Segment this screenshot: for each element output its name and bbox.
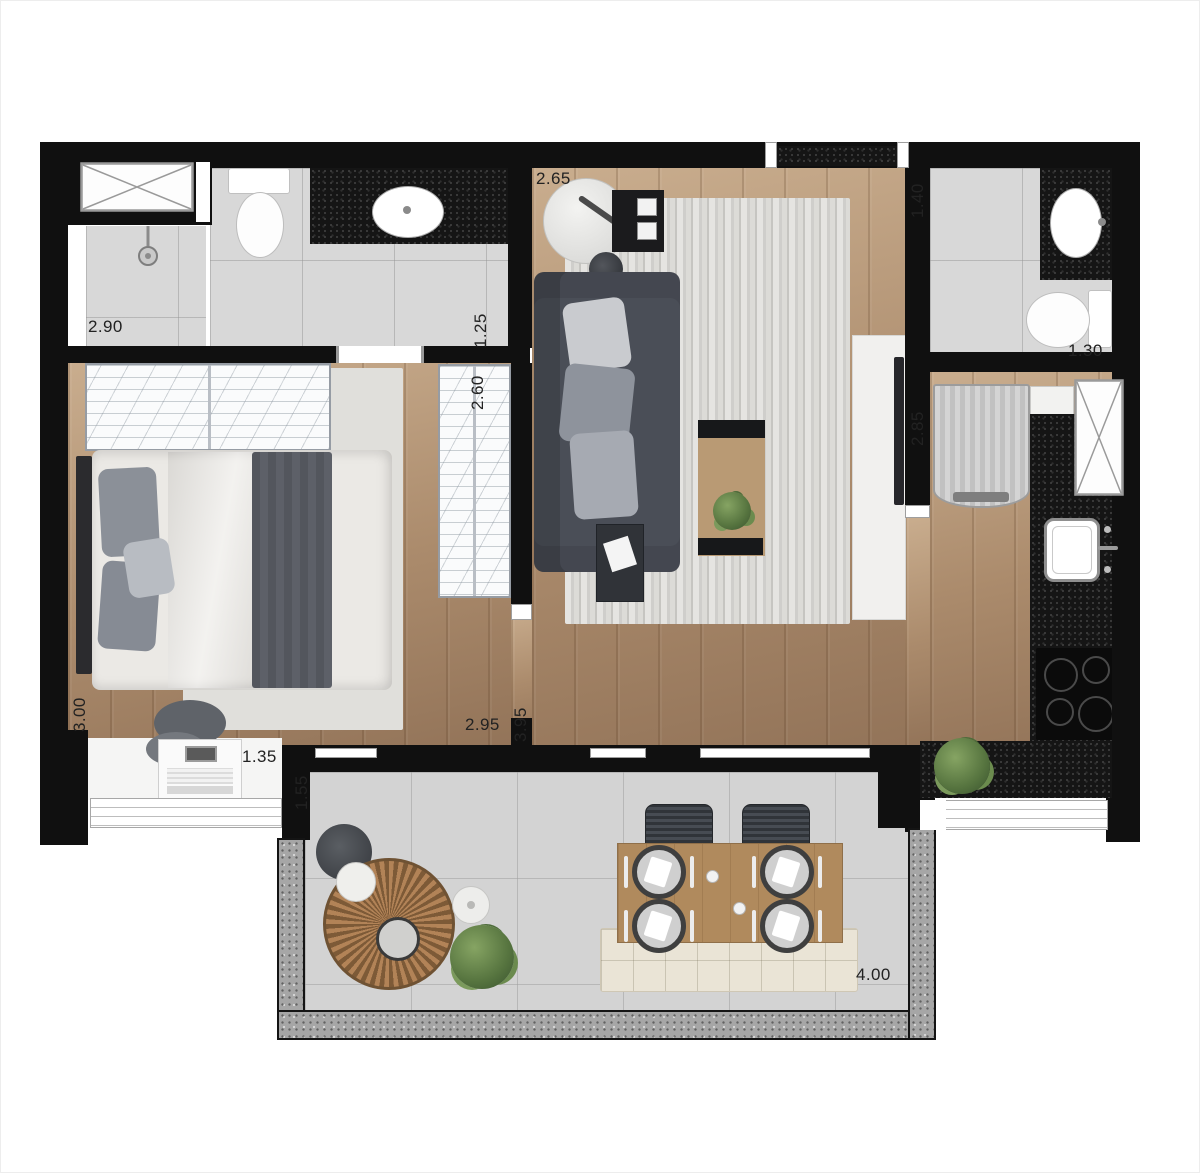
wall-left-corner xyxy=(40,730,88,845)
kitchen-plant xyxy=(934,738,990,794)
kitchen-passage-floor xyxy=(905,518,930,745)
burner-4 xyxy=(1078,696,1114,732)
shower-head-icon xyxy=(130,226,166,270)
floor-plan: 2.90 1.25 2.65 1.40 1.30 2.60 2.85 3.00 … xyxy=(0,0,1200,1173)
kitchen-sink-basin xyxy=(1052,526,1092,574)
balcony-wall-bottom xyxy=(277,1010,935,1040)
toilet2-bowl xyxy=(1026,292,1090,348)
washer-base xyxy=(167,786,233,794)
napkin-2 xyxy=(772,856,801,888)
console-tray-2 xyxy=(637,222,657,240)
bathroom1-door-opening xyxy=(336,346,424,363)
wardrobe-top xyxy=(85,363,331,451)
wall-bath1-living xyxy=(508,168,532,348)
entry-jamb-left xyxy=(765,142,777,168)
wall-bedroom-living xyxy=(511,363,532,608)
console-tray-1 xyxy=(637,198,657,216)
bath2-faucet-icon xyxy=(1098,218,1106,226)
dim-bath1-depth: 1.25 xyxy=(472,313,489,348)
washer-vents xyxy=(167,768,233,784)
dim-living-depth: 3.95 xyxy=(512,707,529,742)
dim-wardrobe-length: 2.60 xyxy=(469,375,486,410)
balcony-plant xyxy=(450,925,514,989)
napkin-3 xyxy=(644,910,673,942)
sofa-side-table xyxy=(596,524,644,602)
dim-balcony-depth: 1.55 xyxy=(293,775,310,810)
balcony-door-frame-1 xyxy=(315,748,377,758)
toilet1-tank xyxy=(228,168,290,194)
entry-hall-strip xyxy=(777,146,897,166)
dim-bath2-depth: 1.40 xyxy=(909,183,926,218)
toilet1-bowl xyxy=(236,192,284,258)
refrigerator xyxy=(933,384,1030,508)
dim-laundry-width: 1.35 xyxy=(242,748,277,765)
side-table-dot xyxy=(467,901,475,909)
duct-shaft-icon xyxy=(80,162,194,212)
dim-balcony-width: 4.00 xyxy=(856,966,891,983)
kitchen-window xyxy=(932,800,1108,830)
magazine xyxy=(603,536,637,573)
wicker-chair-center xyxy=(376,917,420,961)
dim-living-width: 2.65 xyxy=(536,170,571,187)
cooktop xyxy=(1036,648,1114,740)
cup-1 xyxy=(706,870,719,883)
washer-panel xyxy=(185,746,217,762)
kitchen-balcony-door xyxy=(920,800,946,830)
kitchen-passage-jamb xyxy=(905,505,930,518)
bath1-duct-jamb xyxy=(196,162,210,222)
coffee-table xyxy=(698,420,765,556)
tv xyxy=(894,357,904,505)
kitchen-duct-shaft-icon xyxy=(1074,379,1124,496)
balcony-cushion xyxy=(336,862,376,902)
balcony-window-sill xyxy=(700,748,870,758)
bath1-faucet-icon xyxy=(403,206,411,214)
wall-living-kitchen xyxy=(905,168,930,518)
burner-1 xyxy=(1044,658,1078,692)
faucet-knob-1 xyxy=(1104,526,1111,533)
place-setting-3 xyxy=(632,899,686,953)
bed-pillow-small xyxy=(122,537,176,600)
kitchen-sink xyxy=(1044,518,1100,582)
coffee-table-plant xyxy=(713,492,751,530)
coffee-table-end-bottom xyxy=(698,538,763,555)
bedroom-door-jamb xyxy=(511,604,532,620)
place-setting-4 xyxy=(760,899,814,953)
wall-kitchen-window-right xyxy=(1106,798,1140,842)
napkin-1 xyxy=(644,856,673,888)
toilet2-tank xyxy=(1088,290,1112,348)
coffee-table-end-top xyxy=(698,420,765,438)
wardrobe-top-rail xyxy=(208,365,211,449)
balcony-wall-right xyxy=(908,828,936,1040)
refrigerator-handle xyxy=(953,492,1009,502)
sofa-pillow-light xyxy=(561,296,632,374)
bed-runner-blanket xyxy=(252,452,332,688)
wall-bath1-bottom xyxy=(68,346,530,363)
dim-kitchen-depth: 2.85 xyxy=(909,411,926,446)
cup-2 xyxy=(733,902,746,915)
burner-3 xyxy=(1046,698,1074,726)
place-setting-1 xyxy=(632,845,686,899)
balcony-side-table xyxy=(452,886,490,924)
dim-bath2-width: 1.30 xyxy=(1068,342,1103,359)
burner-2 xyxy=(1082,656,1110,684)
sofa-throw xyxy=(569,430,639,520)
entry-jamb-right xyxy=(897,142,909,168)
console-cabinet xyxy=(612,190,664,252)
duvet xyxy=(168,452,254,688)
wall-left xyxy=(40,142,68,810)
dim-bedroom-width: 2.95 xyxy=(465,716,500,733)
place-setting-2 xyxy=(760,845,814,899)
kitchen-faucet-icon xyxy=(1098,546,1118,550)
laundry-window xyxy=(90,798,282,828)
dim-bedroom-depth: 3.00 xyxy=(71,697,88,732)
bath2-sink xyxy=(1050,188,1102,258)
shower-glass-panel xyxy=(206,225,210,348)
washing-machine xyxy=(158,739,242,799)
napkin-4 xyxy=(772,910,801,942)
balcony-door-frame-2 xyxy=(590,748,646,758)
faucet-knob-2 xyxy=(1104,566,1111,573)
dim-bath1-width: 2.90 xyxy=(88,318,123,335)
bed-headboard xyxy=(76,456,92,674)
